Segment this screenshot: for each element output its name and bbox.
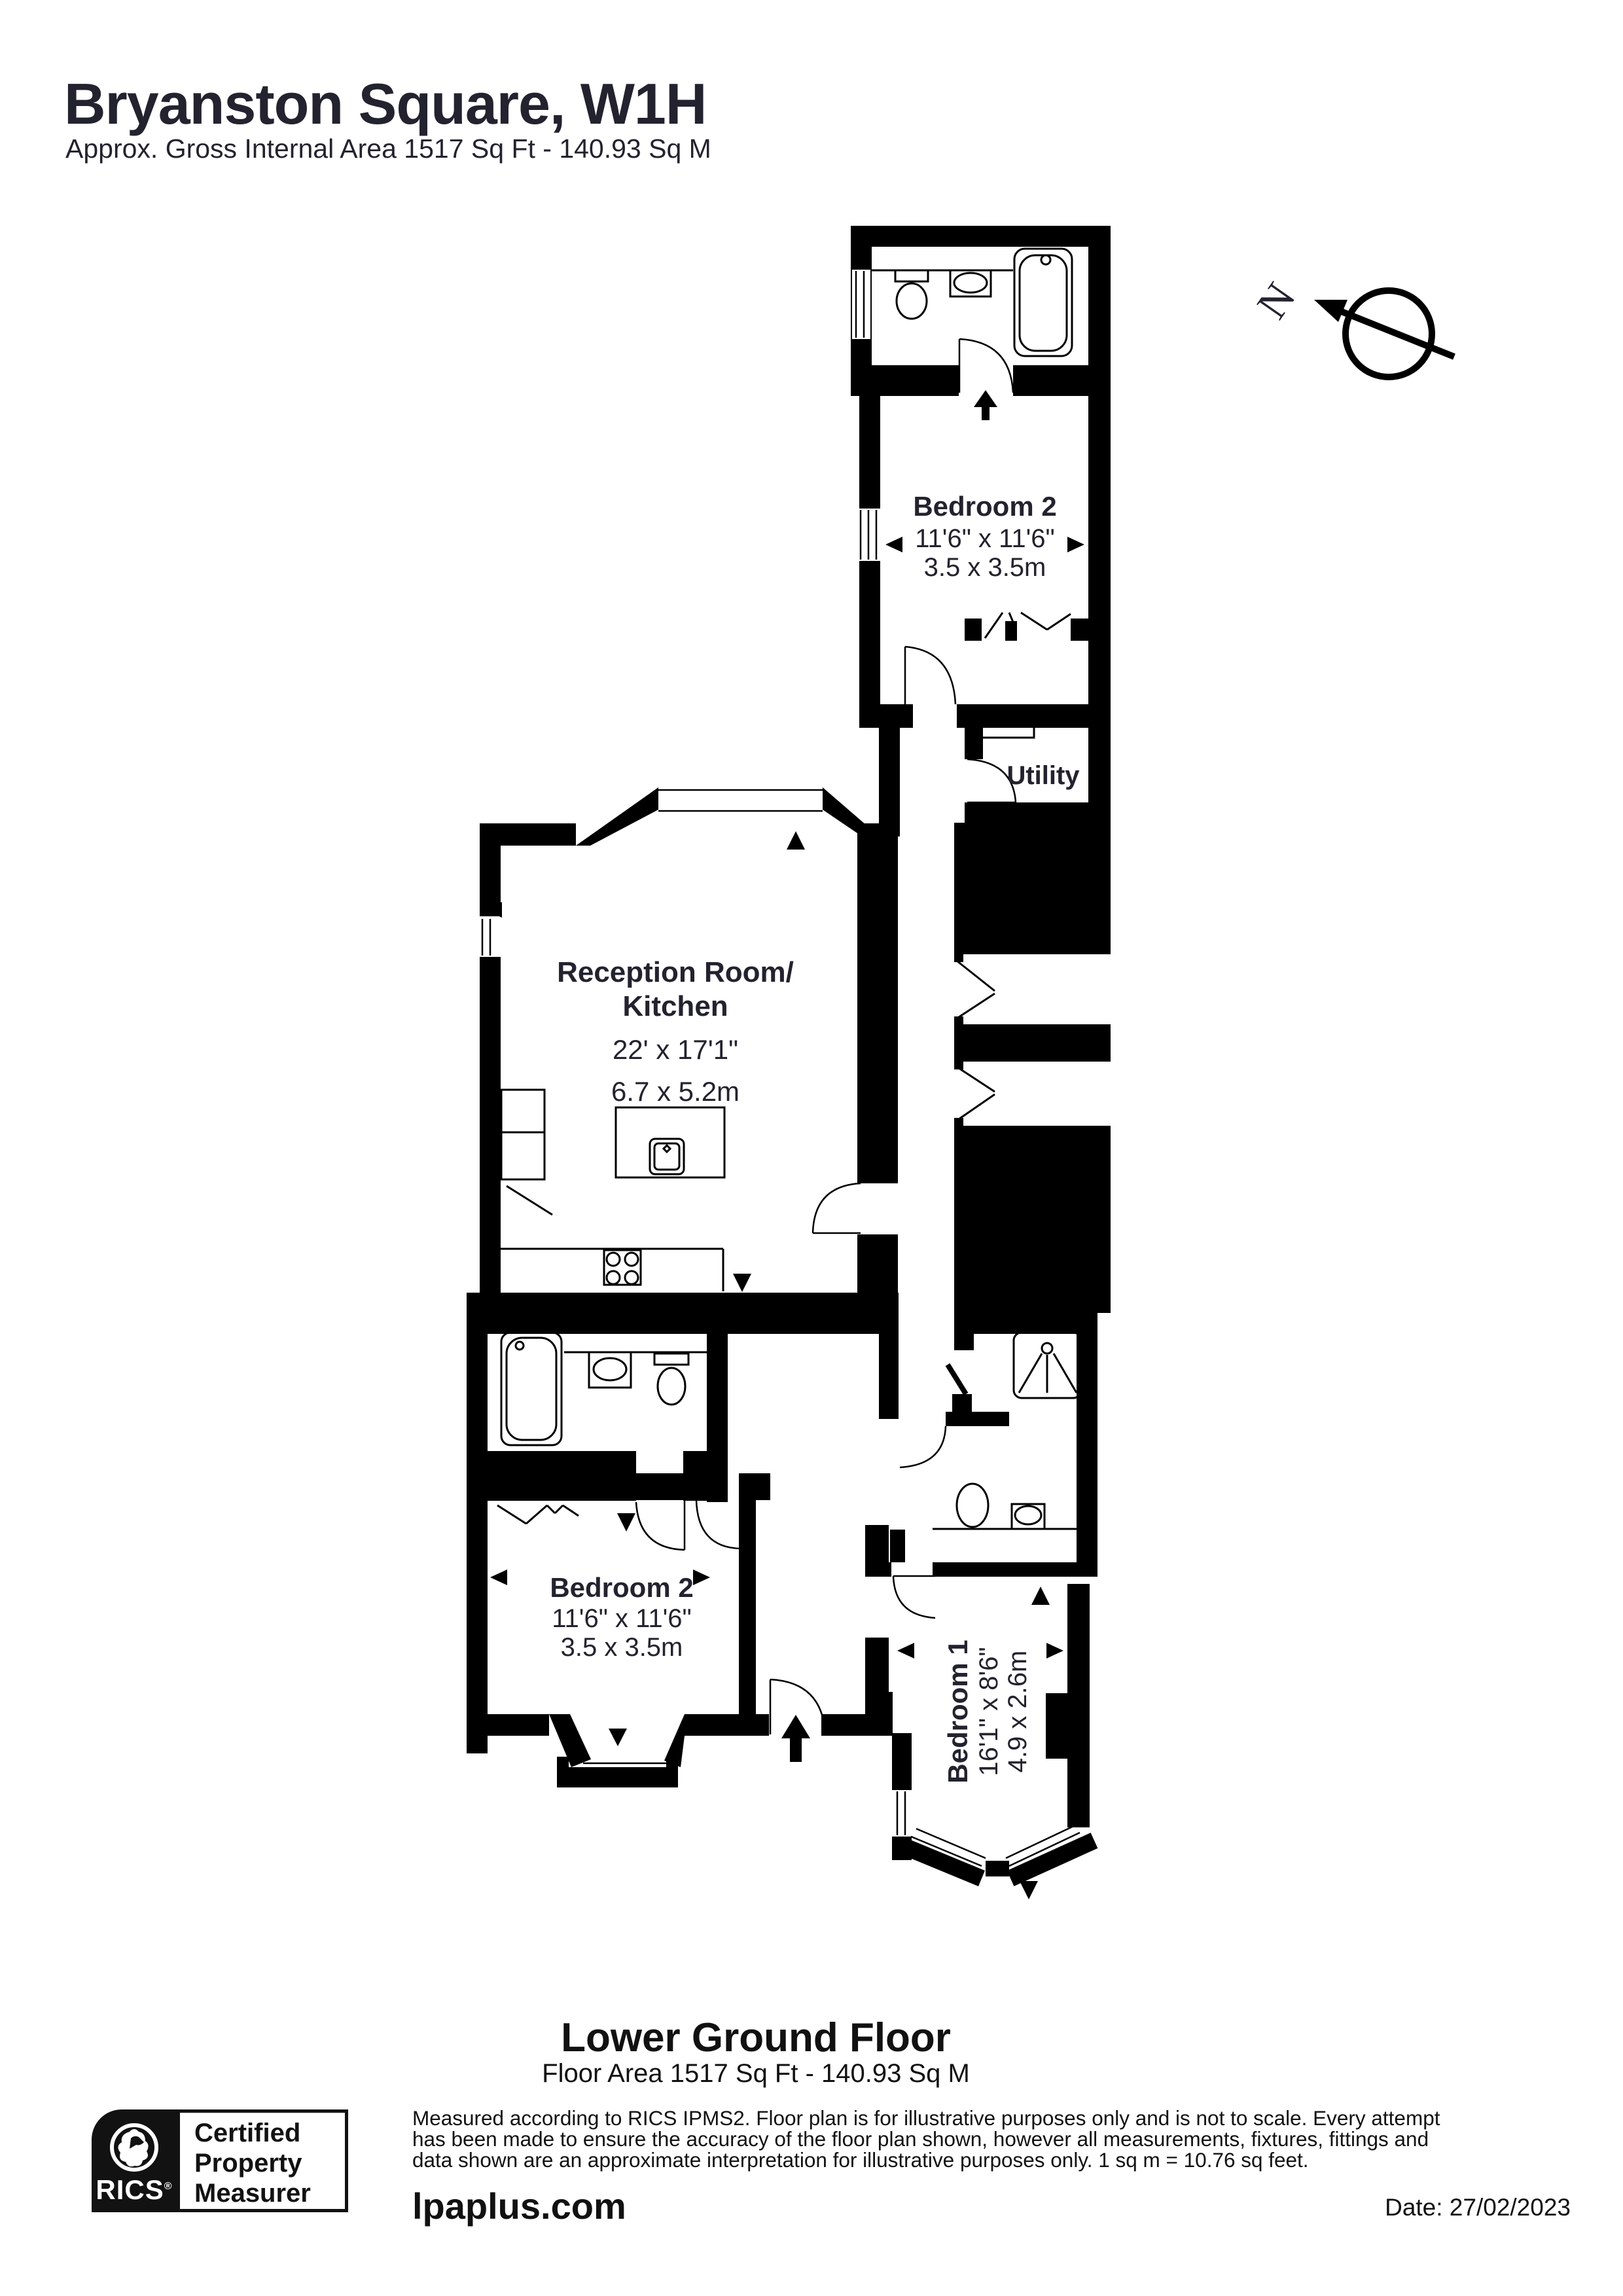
toilet-cistern-icon [895,270,928,281]
toilet-icon [658,1368,685,1405]
disclaimer: Measured according to RICS IPMS2. Floor … [412,2108,1584,2170]
utility-label: Utility [1007,761,1080,790]
bedroom1-imperial: 16'1" x 8'6" [974,1647,1003,1776]
website-link: lpaplus.com [412,2185,626,2227]
bedroom2-lower-imperial: 11'6" x 11'6" [552,1604,691,1633]
bedroom2-top-label: Bedroom 2 [913,491,1056,522]
toilet-icon [957,1484,988,1527]
hob-icon [604,1250,641,1285]
bedroom2-top-imperial: 11'6" x 11'6" [915,524,1054,553]
bedroom2-lower-door [696,1500,740,1549]
shower-room-door-leaf [948,1365,966,1394]
bedroom1-label: Bedroom 1 [942,1640,973,1783]
date-label: Date: 27/02/2023 [1385,2194,1571,2221]
badge-line-2: Property [194,2148,345,2178]
compass-north-label: N [1248,274,1305,327]
bathtub-icon [1014,249,1072,356]
reception-label-2: Kitchen [622,990,728,1022]
compass-arrowhead-icon [1314,300,1347,322]
bedroom2-top-metric: 3.5 x 3.5m [924,553,1046,582]
badge-line-1: Certified [194,2118,345,2148]
disclaimer-line-2: has been made to ensure the accuracy of … [412,2128,1584,2149]
kitchen-counter-left [501,1090,544,1179]
bedroom2-lower-label: Bedroom 2 [550,1572,693,1603]
floor-area: Floor Area 1517 Sq Ft - 140.93 Sq M [0,2059,1512,2089]
bath-tap-icon [1041,255,1050,264]
compass: N [1248,274,1454,377]
disclaimer-line-1: Measured according to RICS IPMS2. Floor … [412,2108,1584,2128]
disclaimer-line-3: data shown are an approximate interpreta… [412,2149,1584,2170]
reception-label-1: Reception Room/ [557,956,794,988]
rics-reg-mark: ® [164,2181,173,2192]
entry-arrow-icon [781,1715,810,1762]
bedroom2-lower-metric: 3.5 x 3.5m [561,1633,683,1662]
badge-line-3: Measurer [194,2178,345,2208]
toilet-icon [897,283,927,319]
bathtub-icon [501,1333,562,1445]
bedroom1-metric: 4.9 x 2.6m [1003,1651,1032,1773]
shower-room-door [900,1426,946,1467]
floorplan-page: Bryanston Square, W1H Approx. Gross Inte… [0,0,1623,2296]
basin-icon [1015,1506,1041,1524]
basin-icon [954,273,987,293]
cupboard-door [507,1186,552,1215]
rics-badge-text: Certified Property Measurer [177,2109,348,2212]
sink-tap-icon [664,1145,670,1152]
reception-imperial: 22' x 17'1" [613,1034,738,1065]
toilet-cistern-icon [654,1354,688,1365]
rics-wordmark: RICS® [92,2174,177,2206]
rics-badge-logo: RICS® [92,2109,177,2212]
rics-text: RICS [96,2174,164,2205]
bath-tap-icon [516,1342,524,1350]
floor-name: Lower Ground Floor [0,2015,1512,2061]
reception-metric: 6.7 x 5.2m [611,1076,740,1107]
floor-plan-drawing: Bedroom 2 11'6" x 11'6" 3.5 x 3.5m Utili… [0,0,1623,2296]
basin-icon [594,1358,626,1380]
